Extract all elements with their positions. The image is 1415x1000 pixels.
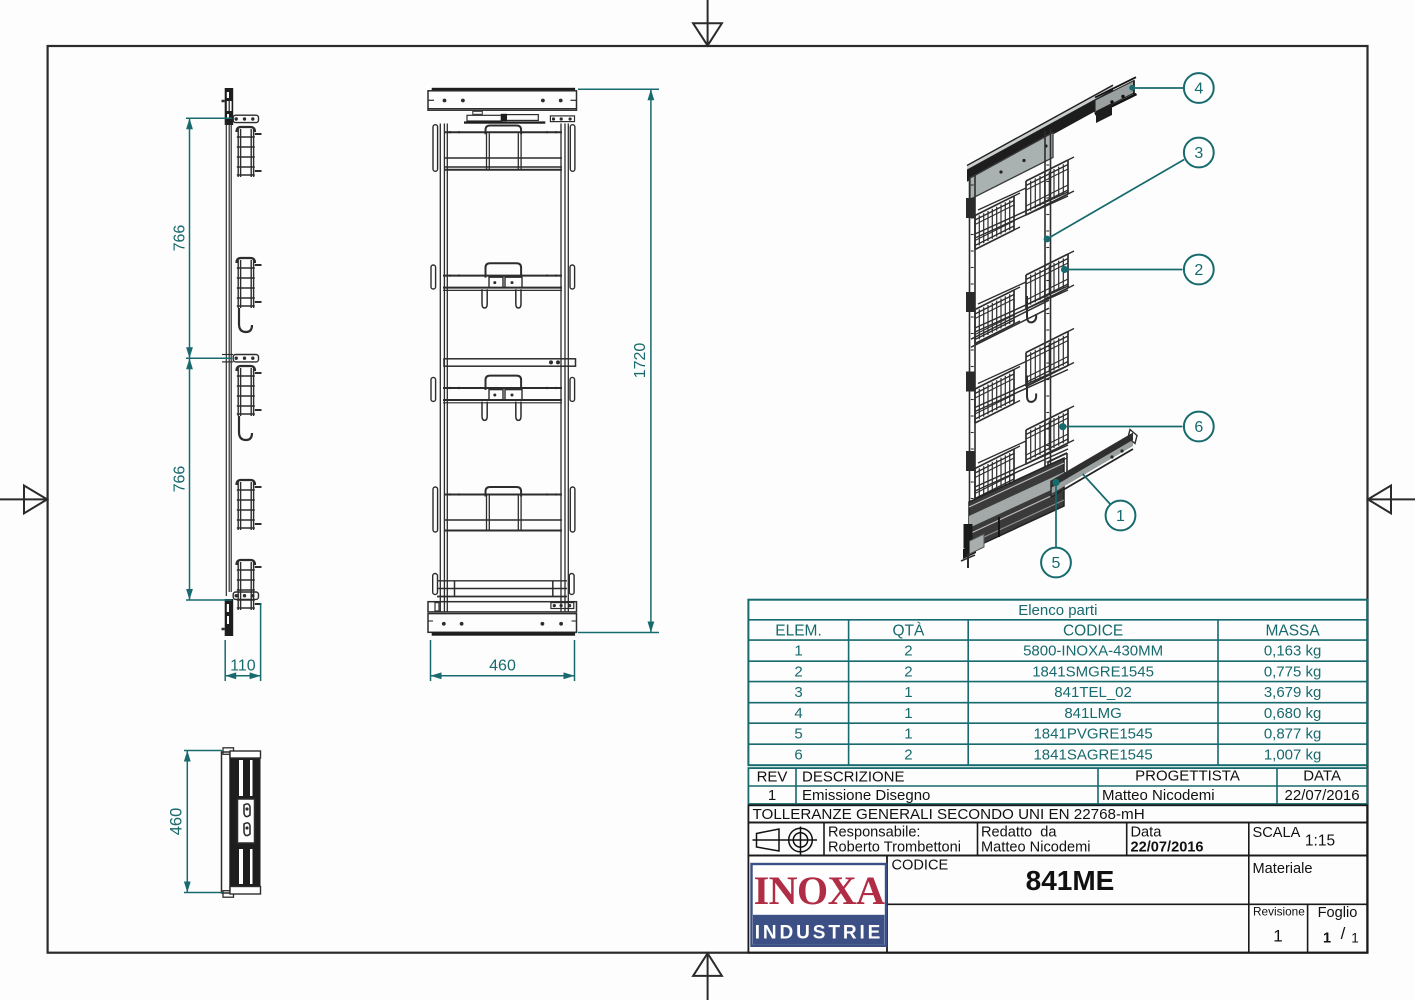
svg-text:CODICE: CODICE: [1063, 622, 1123, 639]
svg-text:1720: 1720: [632, 343, 649, 379]
svg-text:3: 3: [1194, 145, 1203, 162]
svg-text:841ME: 841ME: [1026, 865, 1115, 896]
svg-text:1: 1: [1351, 931, 1359, 946]
svg-text:QTÀ: QTÀ: [892, 622, 925, 639]
svg-text:1841PVGRE1545: 1841PVGRE1545: [1033, 726, 1152, 743]
svg-text:0,775 kg: 0,775 kg: [1264, 664, 1322, 681]
svg-text:1841SAGRE1545: 1841SAGRE1545: [1033, 747, 1152, 764]
svg-text:3: 3: [794, 684, 802, 701]
svg-text:2: 2: [904, 643, 912, 660]
svg-text:6: 6: [794, 747, 802, 764]
svg-text:Matteo Nicodemi: Matteo Nicodemi: [1102, 787, 1215, 804]
svg-text:TOLLERANZE GENERALI SECONDO UN: TOLLERANZE GENERALI SECONDO UNI EN 22768…: [753, 806, 1145, 823]
svg-text:0,877 kg: 0,877 kg: [1264, 726, 1322, 743]
svg-text:1: 1: [1116, 508, 1125, 525]
svg-text:Elenco parti: Elenco parti: [1018, 602, 1097, 619]
svg-text:0,680 kg: 0,680 kg: [1264, 705, 1322, 722]
svg-text:460: 460: [167, 808, 185, 836]
svg-text:PROGETTISTA: PROGETTISTA: [1135, 768, 1240, 785]
svg-text:1: 1: [768, 787, 776, 804]
svg-text:Matteo Nicodemi: Matteo Nicodemi: [981, 839, 1091, 855]
svg-text:22/07/2016: 22/07/2016: [1285, 787, 1360, 804]
svg-text:5: 5: [794, 726, 802, 743]
svg-text:460: 460: [489, 658, 516, 675]
svg-text:766: 766: [172, 225, 189, 252]
svg-text:1: 1: [1323, 931, 1331, 947]
svg-text:SCALA: SCALA: [1253, 825, 1301, 841]
svg-text:DATA: DATA: [1303, 768, 1341, 785]
svg-text:2: 2: [904, 747, 912, 764]
svg-text:766: 766: [172, 466, 189, 493]
svg-text:INOXA: INOXA: [754, 868, 885, 913]
svg-text:Responsabile:: Responsabile:: [828, 824, 921, 840]
svg-text:Foglio: Foglio: [1318, 905, 1358, 921]
svg-text:1,007 kg: 1,007 kg: [1264, 747, 1322, 764]
svg-text:5800-INOXA-430MM: 5800-INOXA-430MM: [1023, 643, 1163, 660]
svg-text:1: 1: [904, 705, 912, 722]
svg-text:Data: Data: [1131, 824, 1163, 840]
svg-text:Redatto da: Redatto da: [981, 824, 1057, 840]
svg-text:3,679 kg: 3,679 kg: [1264, 684, 1322, 701]
svg-text:1: 1: [794, 643, 802, 660]
svg-text:1:15: 1:15: [1305, 833, 1335, 850]
svg-text:22/07/2016: 22/07/2016: [1131, 839, 1204, 855]
svg-text:1: 1: [904, 726, 912, 743]
svg-text:DESCRIZIONE: DESCRIZIONE: [802, 769, 905, 786]
svg-text:2: 2: [904, 664, 912, 681]
svg-text:Revisione: Revisione: [1253, 905, 1305, 919]
svg-text:0,163 kg: 0,163 kg: [1264, 643, 1322, 660]
svg-text:MASSA: MASSA: [1265, 622, 1320, 639]
svg-text:841TEL_02: 841TEL_02: [1054, 684, 1132, 701]
svg-text:1: 1: [1273, 927, 1282, 946]
svg-text:CODICE: CODICE: [892, 858, 949, 874]
svg-text:Materiale: Materiale: [1253, 861, 1313, 877]
svg-text:2: 2: [794, 664, 802, 681]
svg-text:4: 4: [1194, 81, 1203, 98]
svg-text:/: /: [1341, 924, 1346, 943]
svg-text:INDUSTRIE: INDUSTRIE: [755, 923, 884, 944]
svg-text:110: 110: [230, 658, 256, 675]
svg-text:ELEM.: ELEM.: [775, 622, 822, 639]
svg-text:REV: REV: [757, 769, 788, 786]
svg-text:841LMG: 841LMG: [1064, 705, 1122, 722]
svg-text:Emissione Disegno: Emissione Disegno: [802, 787, 930, 804]
svg-text:2: 2: [1194, 262, 1203, 279]
svg-text:6: 6: [1194, 419, 1203, 436]
svg-text:4: 4: [794, 705, 802, 722]
svg-text:Roberto Trombettoni: Roberto Trombettoni: [828, 839, 961, 855]
svg-text:1841SMGRE1545: 1841SMGRE1545: [1032, 664, 1154, 681]
svg-text:5: 5: [1052, 555, 1061, 572]
svg-text:1: 1: [904, 684, 912, 701]
